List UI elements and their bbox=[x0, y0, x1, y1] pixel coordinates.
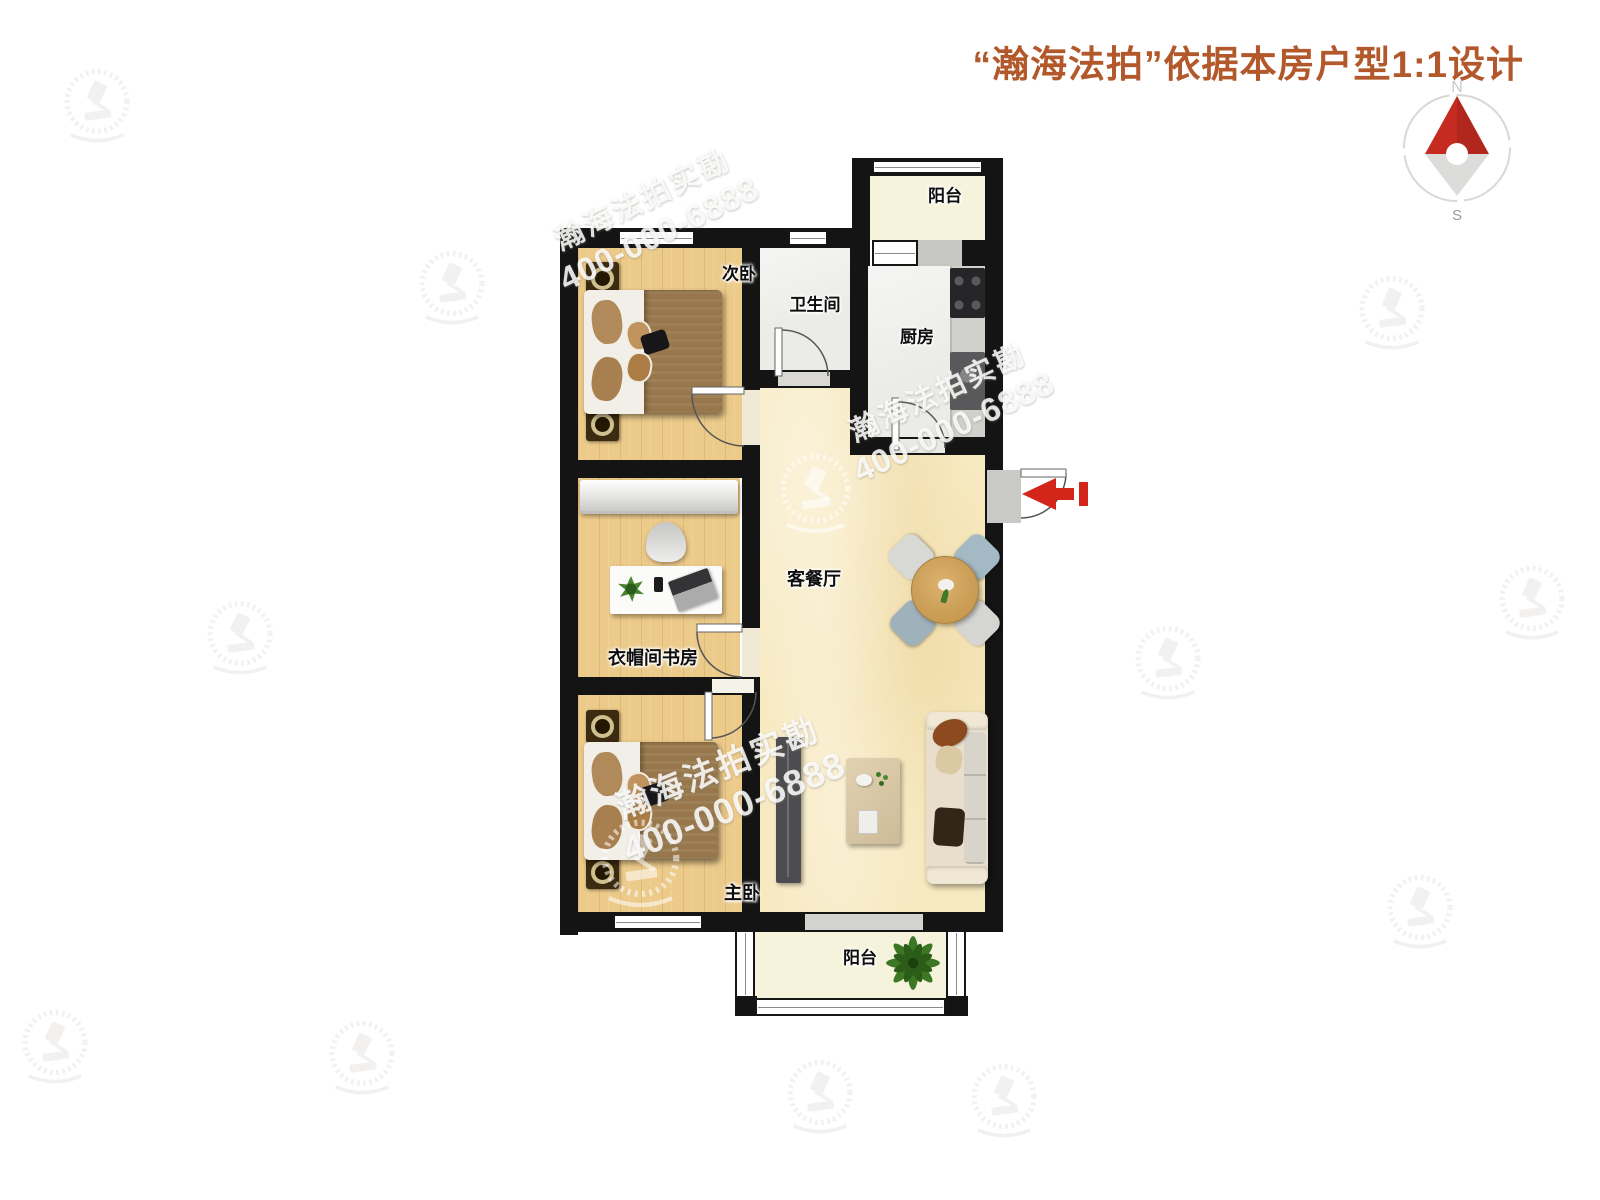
compass: N S bbox=[1395, 68, 1520, 228]
watermark-logo bbox=[1376, 867, 1464, 955]
wall bbox=[946, 996, 968, 1016]
coffee-table bbox=[846, 758, 900, 844]
room-label-secondary-bedroom: 次卧 bbox=[722, 260, 756, 285]
window bbox=[788, 230, 828, 246]
room-label-study: 衣帽间书房 bbox=[608, 644, 698, 670]
wall bbox=[742, 248, 760, 912]
window bbox=[872, 160, 983, 174]
window bbox=[618, 230, 695, 246]
phone bbox=[654, 577, 663, 592]
balcony-opening bbox=[805, 914, 923, 930]
watermark-logo bbox=[408, 243, 496, 331]
tray bbox=[858, 810, 878, 834]
door-arc-entry bbox=[1021, 473, 1066, 518]
balcony-slider-panel bbox=[918, 240, 962, 266]
nightstand-lamp bbox=[586, 710, 619, 743]
wall bbox=[735, 996, 757, 1016]
sofa-pillow bbox=[933, 807, 966, 847]
room-label-kitchen: 厨房 bbox=[900, 323, 934, 348]
compass-south-label: S bbox=[1452, 207, 1462, 224]
watermark-logo bbox=[1348, 268, 1436, 356]
sofa-back-cushions bbox=[964, 732, 986, 864]
door-threshold bbox=[778, 372, 830, 386]
door-threshold bbox=[742, 390, 760, 445]
door-threshold bbox=[742, 628, 760, 677]
laptop bbox=[668, 568, 718, 612]
watermark-logo bbox=[11, 1002, 99, 1090]
wall bbox=[962, 240, 985, 266]
watermark-logo bbox=[1124, 618, 1212, 706]
wall bbox=[560, 228, 578, 935]
compass-hub bbox=[1446, 143, 1468, 165]
window bbox=[755, 998, 946, 1016]
desk-plant bbox=[618, 576, 644, 602]
entry-door-threshold bbox=[987, 470, 1021, 523]
window bbox=[735, 930, 755, 998]
balcony-slider-door bbox=[872, 240, 918, 266]
kitchen-sink bbox=[950, 352, 985, 410]
stove bbox=[950, 268, 985, 318]
wardrobe bbox=[580, 480, 738, 514]
bed-secondary bbox=[584, 290, 722, 414]
cup bbox=[856, 774, 872, 786]
desk bbox=[610, 566, 722, 614]
watermark-logo bbox=[196, 593, 284, 681]
watermark-logo bbox=[776, 1052, 864, 1140]
entry-arrow-icon bbox=[1022, 478, 1088, 510]
room-label-balcony-bottom: 阳台 bbox=[843, 944, 877, 969]
window bbox=[946, 930, 966, 998]
sofa-armrest bbox=[926, 866, 988, 884]
room-label-master-bedroom: 主卧 bbox=[724, 879, 760, 905]
door-threshold bbox=[893, 439, 945, 453]
compass-north-label: N bbox=[1451, 79, 1463, 96]
watermark-logo bbox=[960, 1056, 1048, 1144]
entry-door-panel bbox=[1021, 469, 1066, 477]
floorplan-canvas: “瀚海法拍”依据本房户型1:1设计 N S bbox=[0, 0, 1600, 1200]
room-label-balcony-top: 阳台 bbox=[928, 182, 962, 207]
window bbox=[613, 914, 703, 930]
room-label-bathroom: 卫生间 bbox=[790, 291, 841, 316]
tv-cabinet bbox=[776, 737, 801, 883]
balcony-plant bbox=[882, 932, 944, 994]
wall bbox=[560, 460, 760, 478]
watermark-logo bbox=[1488, 558, 1576, 646]
dining-table bbox=[911, 556, 979, 624]
nightstand-lamp bbox=[586, 856, 619, 889]
door-threshold bbox=[712, 679, 754, 693]
bed-master bbox=[584, 742, 718, 860]
leaves-decor bbox=[876, 772, 881, 777]
watermark-logo bbox=[53, 61, 141, 149]
sofa bbox=[926, 712, 988, 884]
wall bbox=[850, 248, 868, 455]
table-plant bbox=[940, 588, 949, 603]
desk-chair bbox=[646, 522, 686, 562]
room-label-living-dining: 客餐厅 bbox=[787, 565, 841, 591]
tv-screen bbox=[787, 743, 789, 877]
watermark-logo bbox=[318, 1013, 406, 1101]
